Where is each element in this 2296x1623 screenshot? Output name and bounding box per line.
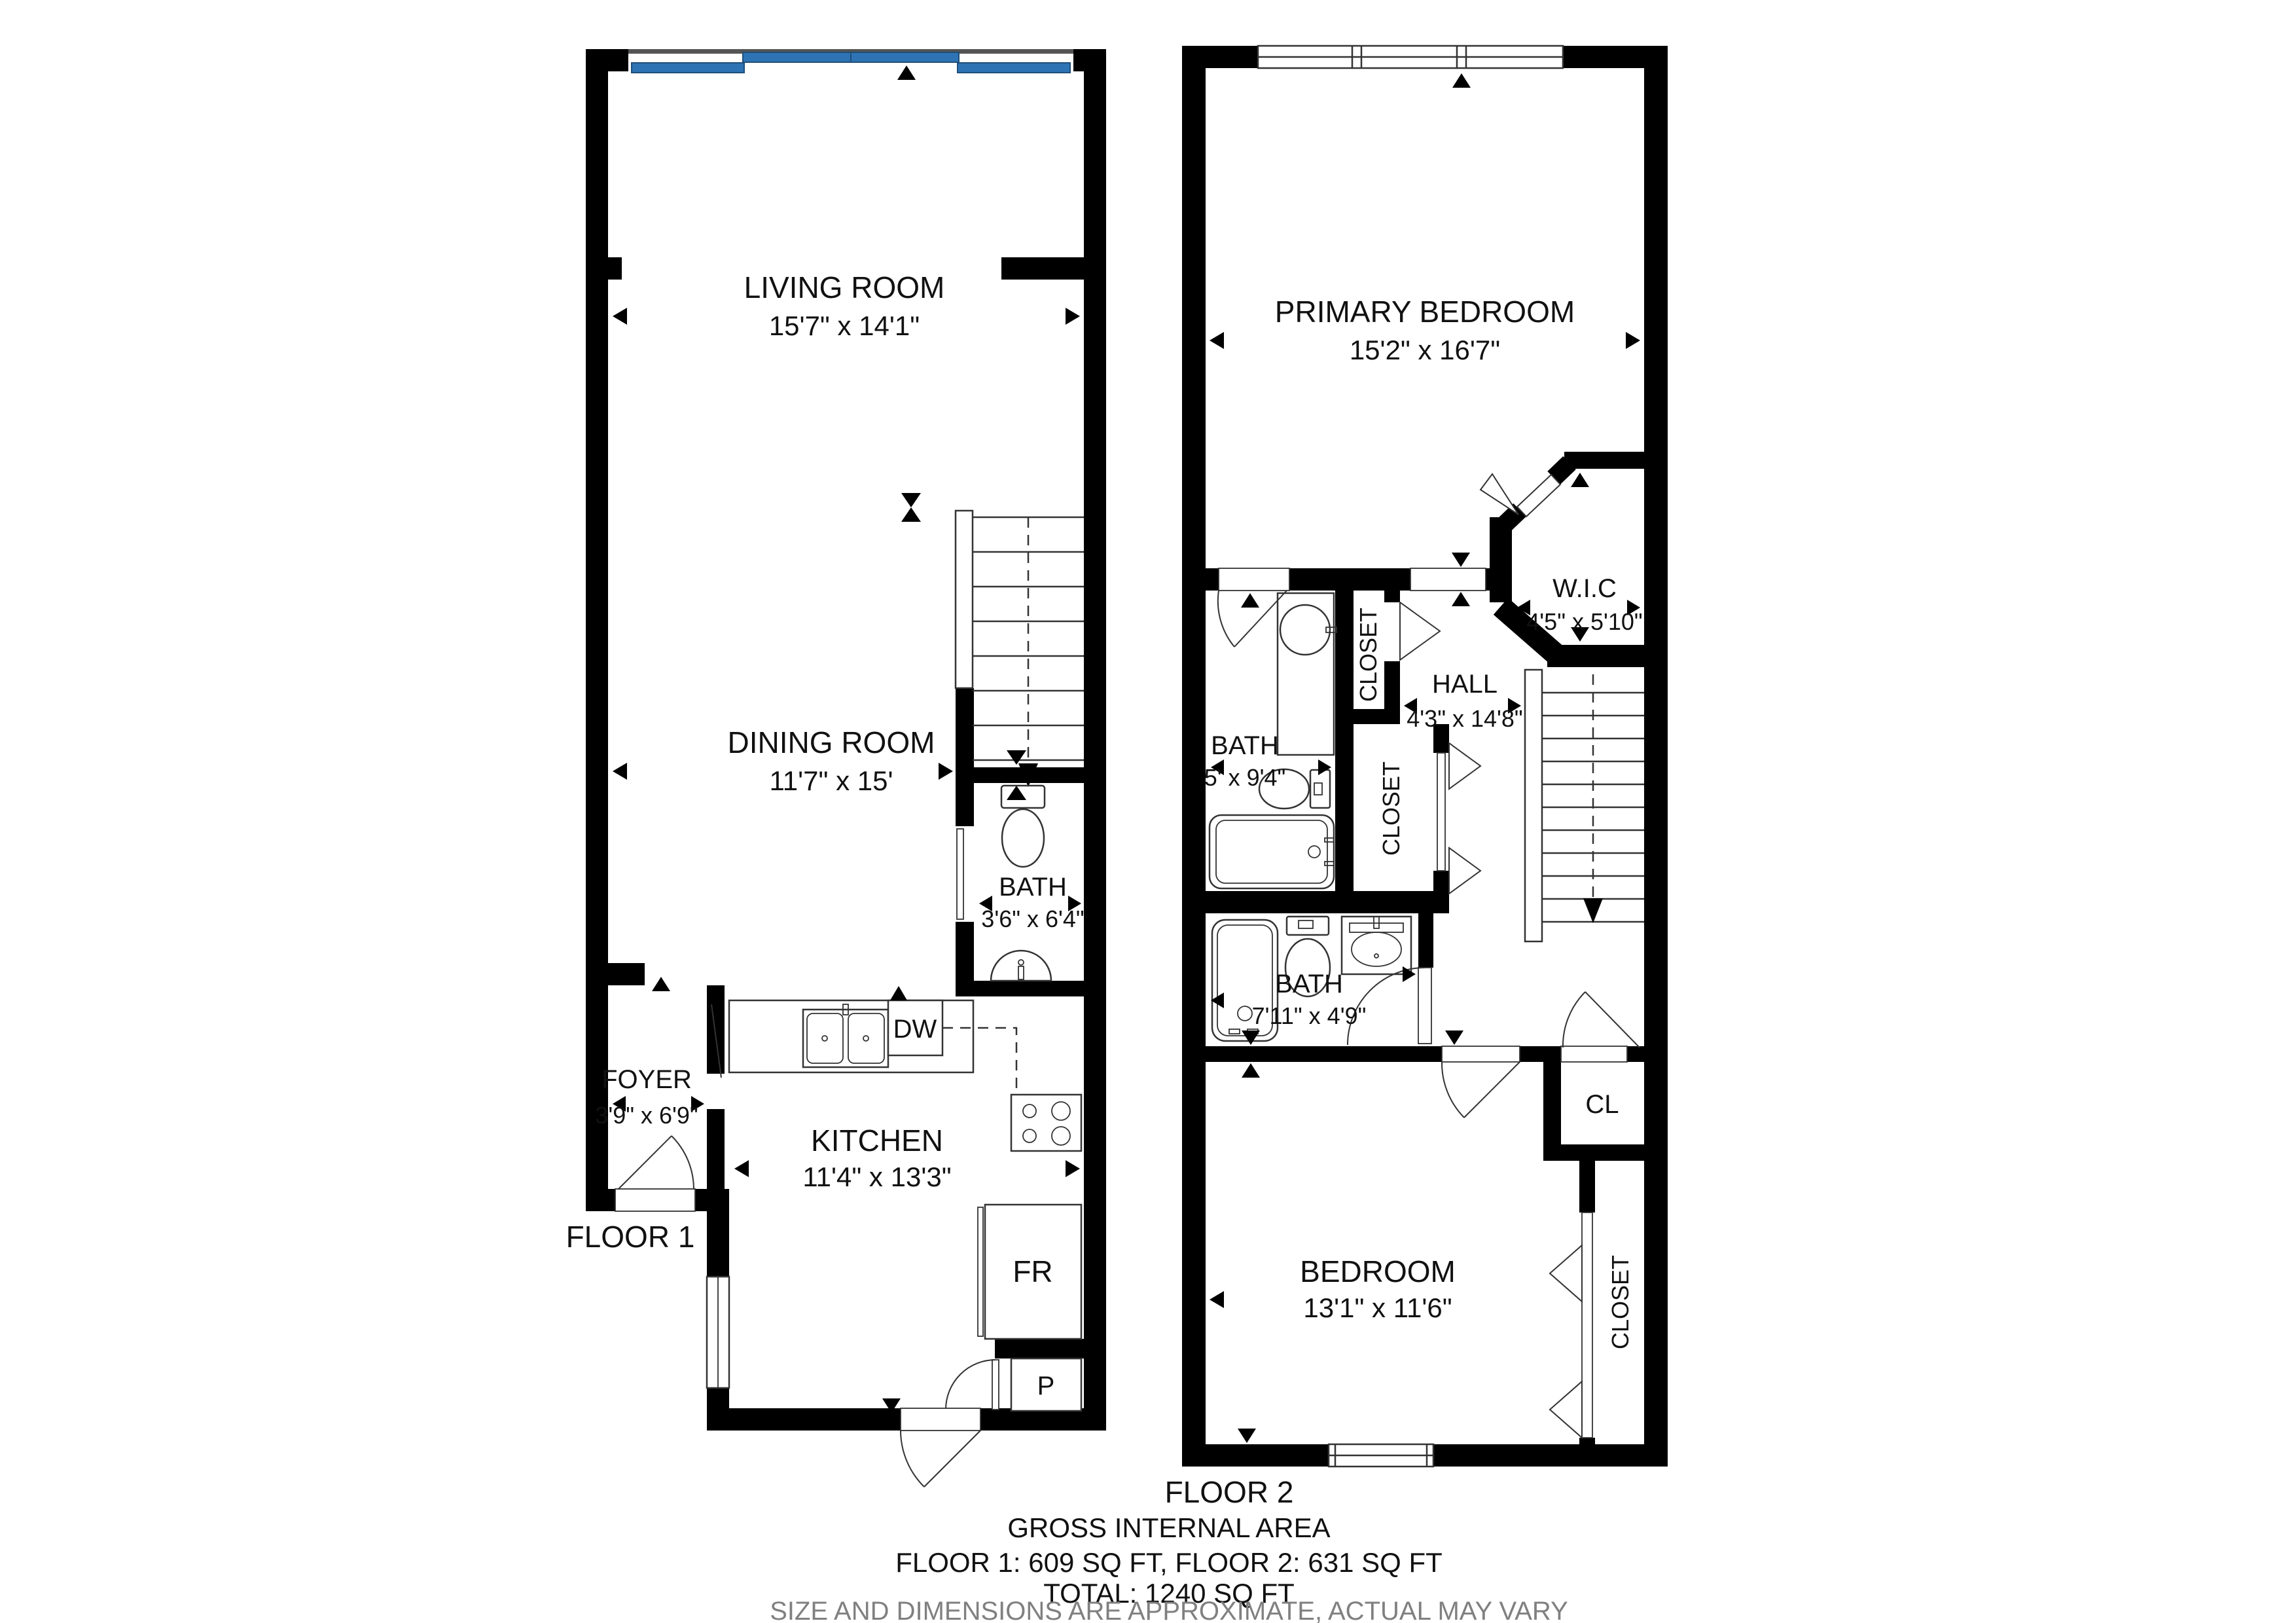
floor2: BATH 5' x 9'4" CLOSET CLOSET W.I.C 4'5" …: [1165, 46, 1668, 1509]
kitchen-window: [707, 1277, 729, 1388]
wic-dims: 4'5" x 5'10": [1526, 608, 1642, 635]
landing-opening: [1410, 553, 1486, 606]
disclaimer: SIZE AND DIMENSIONS ARE APPROXIMATE, ACT…: [770, 1597, 1568, 1623]
bath-lower-label: BATH: [1275, 970, 1343, 998]
closet-hall: CLOSET: [1378, 743, 1480, 894]
closet-bedroom-label: CLOSET: [1607, 1255, 1634, 1349]
bedroom-label: BEDROOM: [1300, 1254, 1456, 1288]
floorplan-canvas: LIVING ROOM 15'7" x 14'1" DINING ROOM 11…: [0, 0, 2296, 1623]
staircase-floor2: [1525, 670, 1644, 941]
bath-upper-label: BATH: [1211, 731, 1279, 760]
bedroom-door: [1242, 1030, 1520, 1118]
bath1-label: BATH: [999, 873, 1067, 902]
ensuite-door: [1218, 568, 1289, 647]
stove-icon: [1011, 1095, 1081, 1151]
hall: HALL 4'3" x 14'8": [1404, 670, 1523, 732]
bedroom-dims: 13'1" x 11'6": [1303, 1292, 1452, 1323]
hall-label: HALL: [1432, 670, 1498, 699]
pocket-door: [957, 829, 963, 919]
dining-room-dims: 11'7" x 15': [770, 765, 893, 796]
floor2-title: FLOOR 2: [1165, 1475, 1294, 1509]
sink-icon: [991, 951, 1051, 981]
kitchen-dims: 11'4" x 13'3": [802, 1161, 951, 1192]
level-marker-icon: [901, 493, 921, 522]
bath-lower-dims: 7'11" x 4'9": [1252, 1002, 1367, 1029]
floor1-title: FLOOR 1: [566, 1220, 695, 1254]
bath-upper-dims: 5' x 9'4": [1204, 764, 1286, 791]
bath-lower: BATH 7'11" x 4'9": [1211, 917, 1431, 1045]
kitchen-label: KITCHEN: [811, 1123, 943, 1158]
primary-window: [1258, 46, 1563, 88]
closet-upper-label: CLOSET: [1355, 608, 1382, 702]
kitchen-sink-icon: [803, 1004, 888, 1067]
sink-icon: [1342, 917, 1411, 974]
floor-areas: FLOOR 1: 609 SQ FT, FLOOR 2: 631 SQ FT: [895, 1547, 1443, 1578]
bathtub-icon: [1210, 815, 1334, 888]
foyer-label: FOYER: [601, 1065, 692, 1094]
closet-bedroom: CLOSET: [1550, 1213, 1634, 1438]
floor1: LIVING ROOM 15'7" x 14'1" DINING ROOM 11…: [566, 49, 1106, 1487]
gross-area-title: GROSS INTERNAL AREA: [1007, 1512, 1330, 1543]
hall-dims: 4'3" x 14'8": [1407, 705, 1522, 732]
bath1-dims: 3'6" x 6'4": [981, 905, 1084, 932]
vanity-sink-icon: [1278, 593, 1336, 755]
living-room-label: LIVING ROOM: [744, 270, 945, 304]
pantry: [946, 1359, 1081, 1411]
sliding-door: [628, 49, 1073, 80]
dining-room-label: DINING ROOM: [728, 725, 935, 759]
closet-hall-label: CLOSET: [1378, 761, 1405, 856]
dishwasher-label: DW: [893, 1015, 937, 1044]
living-room-dims: 15'7" x 14'1": [769, 310, 920, 341]
fridge-label: FR: [1013, 1254, 1052, 1288]
primary-bedroom-label: PRIMARY BEDROOM: [1275, 295, 1575, 329]
wic-label: W.I.C: [1552, 574, 1617, 603]
primary-bedroom-dims: 15'2" x 16'7": [1350, 335, 1500, 365]
footer: GROSS INTERNAL AREA FLOOR 1: 609 SQ FT, …: [770, 1512, 1568, 1623]
foyer-dims: 3'9" x 6'9": [595, 1102, 698, 1129]
pantry-label: P: [1037, 1372, 1055, 1400]
cl-label: CL: [1585, 1090, 1619, 1119]
bath-upper: BATH 5' x 9'4": [1204, 568, 1336, 888]
front-door: [615, 977, 695, 1211]
bath-floor1: [957, 750, 1081, 981]
